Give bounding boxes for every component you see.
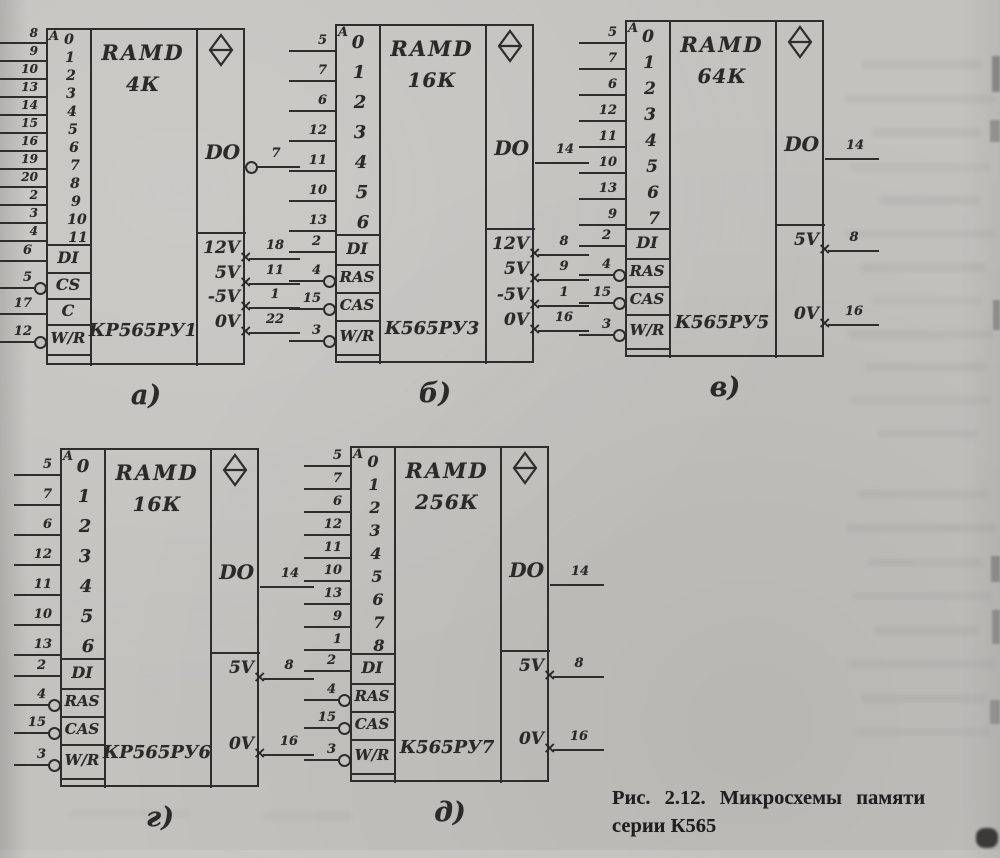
power-label: -5V (197, 287, 240, 307)
page-edge-mark (990, 700, 1000, 724)
inversion-circle-icon (34, 336, 47, 349)
pin-line (579, 146, 625, 148)
pin-number: 5 (289, 33, 327, 48)
pin-number: 2 (0, 188, 38, 202)
power-section-divider (775, 224, 825, 226)
address-bit-label: 7 (636, 209, 672, 229)
pin-line (0, 240, 46, 242)
address-bit-label: 7 (361, 613, 397, 632)
chip-v: A507162123114105136972DI4RAS15CAS3W/RRAM… (579, 20, 879, 428)
pin-number: 5 (579, 25, 617, 40)
pin-line (0, 260, 46, 262)
power-label: -5V (486, 285, 529, 305)
chip-label: д) (415, 797, 485, 828)
power-pin-cross-icon: × (253, 743, 266, 762)
pin-number: 10 (289, 183, 327, 198)
pin-line (289, 170, 335, 172)
power-label: 0V (486, 310, 529, 330)
address-bit-label: 1 (356, 475, 392, 494)
address-bit-label: 4 (54, 104, 90, 120)
pin-number: 16 (833, 304, 875, 319)
pin-number: 5 (0, 270, 32, 285)
pin-number: 4 (304, 682, 336, 697)
output-label: DO (777, 132, 819, 156)
chip-a: A8091102133144155166197208293104116DI5CS… (0, 28, 300, 436)
power-pin-cross-icon: × (239, 296, 252, 315)
pin-number: 3 (289, 323, 321, 338)
pin-number: 2 (14, 658, 46, 673)
input-label: CAS (626, 290, 668, 308)
pin-number: 11 (579, 129, 617, 144)
scan-smudge (874, 626, 979, 635)
inversion-circle-icon (48, 699, 61, 712)
pin-line (14, 504, 60, 506)
pin-number: 10 (14, 607, 52, 622)
pin-line (289, 340, 325, 342)
pin-number: 16 (0, 134, 38, 148)
scan-smudge (872, 297, 982, 305)
power-section-divider (485, 228, 535, 230)
input-label: CAS (61, 720, 103, 738)
power-section-divider (500, 650, 550, 652)
pin-line (579, 245, 625, 247)
input-label: CAS (336, 296, 378, 314)
address-bit-label: 3 (632, 105, 668, 125)
cell-separator (60, 778, 106, 780)
part-number-label: КР565РУ1 (88, 320, 198, 341)
inversion-circle-icon (323, 303, 336, 316)
page-edge-mark (992, 610, 1000, 644)
pin-line (289, 50, 335, 52)
power-pin-cross-icon: × (528, 243, 541, 262)
inversion-circle-icon (48, 727, 61, 740)
pin-number: 3 (0, 206, 38, 220)
power-label: 0V (197, 312, 240, 332)
pin-line (14, 624, 60, 626)
pin-line (579, 224, 625, 226)
chip-label: б) (400, 378, 470, 409)
power-pin-cross-icon: × (818, 239, 831, 258)
pin-number: 13 (0, 80, 38, 94)
input-label: DI (47, 248, 89, 267)
output-label: DO (198, 140, 240, 164)
pin-line (304, 649, 350, 651)
cell-separator (350, 773, 396, 775)
input-label: CAS (351, 715, 393, 733)
device-type-label: RAMD (106, 460, 208, 485)
scan-smudge (848, 660, 996, 668)
input-label: DI (626, 233, 668, 252)
pin-number: 12 (289, 123, 327, 138)
address-bit-label: 6 (345, 212, 381, 233)
cell-separator (60, 658, 106, 660)
power-pin-cross-icon: × (528, 268, 541, 287)
power-pin-cross-icon: × (818, 313, 831, 332)
pin-number: 4 (0, 224, 38, 238)
device-type-label: RAMD (671, 32, 773, 57)
pin-number: 10 (579, 155, 617, 170)
pin-number: 19 (0, 152, 38, 166)
pin-number: 2 (579, 228, 611, 243)
address-bit-label: 5 (69, 606, 105, 627)
inversion-circle-icon (323, 275, 336, 288)
chip-label: в) (690, 372, 760, 403)
input-label: C (47, 301, 89, 320)
pin-line (553, 749, 604, 751)
cell-separator (350, 711, 396, 713)
pin-line (289, 251, 335, 253)
cell-separator (46, 244, 92, 246)
pin-number: 12 (304, 517, 342, 532)
figure-caption: Рис. 2.12. Микросхемы памяти серии К565 (612, 784, 1000, 840)
chip-label: а) (111, 380, 181, 411)
address-bit-label: 0 (630, 27, 666, 47)
scan-smudge (872, 128, 982, 137)
pin-line (304, 465, 350, 467)
cell-separator (625, 258, 671, 260)
pin-number: 14 (560, 564, 600, 579)
pin-line (289, 80, 335, 82)
cell-separator (335, 320, 381, 322)
pin-number: 7 (304, 471, 342, 486)
power-pin-cross-icon: × (253, 667, 266, 686)
pin-line (14, 704, 50, 706)
address-bit-label: 4 (68, 576, 104, 597)
address-bit-label: 6 (56, 140, 92, 156)
chip-label: г) (125, 802, 195, 833)
pin-number: 10 (0, 62, 38, 76)
power-label: 5V (211, 658, 254, 678)
pin-number: 13 (304, 586, 342, 601)
scan-smudge (862, 60, 982, 69)
pin-number: 14 (0, 98, 38, 112)
input-label: DI (336, 239, 378, 258)
inversion-circle-icon (323, 335, 336, 348)
address-bit-label: 3 (67, 546, 103, 567)
page-edge-mark (991, 556, 1000, 582)
pin-number: 16 (558, 729, 600, 744)
pin-line (828, 250, 879, 252)
pin-line (828, 324, 879, 326)
scan-smudge (846, 524, 996, 532)
address-bit-label: 1 (341, 62, 377, 83)
pin-line (14, 534, 60, 536)
pin-number: 4 (289, 263, 321, 278)
pin-number: 14 (835, 138, 875, 153)
capacity-label: 16К (106, 492, 208, 516)
pin-number: 8 (558, 656, 600, 671)
page-edge-mark (990, 120, 1000, 142)
output-label: DO (487, 136, 529, 160)
pin-number: 3 (304, 742, 336, 757)
cell-separator (46, 298, 92, 300)
address-bit-label: 10 (59, 212, 95, 228)
address-bit-label: 3 (53, 86, 89, 102)
pin-line (579, 68, 625, 70)
cell-separator (335, 264, 381, 266)
cell-separator (46, 324, 92, 326)
pin-line (289, 280, 325, 282)
cell-separator (46, 354, 92, 356)
cell-separator (625, 228, 671, 230)
cell-separator (60, 688, 106, 690)
pin-number: 6 (289, 93, 327, 108)
inversion-circle-icon (613, 269, 626, 282)
power-label: 5V (501, 656, 544, 676)
pin-line (304, 670, 350, 672)
address-bit-label: 6 (70, 636, 106, 657)
pin-line (14, 732, 50, 734)
pin-number: 17 (0, 296, 32, 311)
tristate-output-icon (208, 33, 234, 67)
pin-number: 15 (579, 285, 611, 300)
pin-number: 4 (14, 687, 46, 702)
pin-number: 15 (0, 116, 38, 130)
cell-separator (46, 272, 92, 274)
cell-separator (350, 683, 396, 685)
pin-number: 10 (304, 563, 342, 578)
power-label: 12V (486, 234, 529, 254)
output-label: DO (212, 560, 254, 584)
pin-line (14, 654, 60, 656)
scan-smudge (880, 196, 980, 205)
pin-line (304, 534, 350, 536)
address-bit-label: 2 (53, 68, 89, 84)
pin-line (14, 564, 60, 566)
pin-number: 11 (304, 540, 342, 555)
pin-line (304, 759, 340, 761)
power-section-divider (196, 232, 246, 234)
pin-line (304, 626, 350, 628)
tristate-output-icon (512, 451, 538, 485)
cell-separator (60, 716, 106, 718)
pin-line (304, 557, 350, 559)
address-bit-label: 6 (635, 183, 671, 203)
pin-line (289, 140, 335, 142)
power-pin-cross-icon: × (543, 738, 556, 757)
input-label: W/R (336, 327, 378, 345)
tristate-output-icon (787, 25, 813, 59)
pin-number: 15 (14, 715, 46, 730)
inversion-circle-icon (338, 722, 351, 735)
pin-line (304, 603, 350, 605)
power-pin-cross-icon: × (239, 321, 252, 340)
capacity-label: 16К (381, 68, 483, 92)
pin-number: 5 (14, 457, 52, 472)
cell-separator (335, 354, 381, 356)
address-bit-label: 0 (340, 32, 376, 53)
pin-number: 12 (0, 324, 32, 339)
address-bit-label: 3 (357, 521, 393, 540)
pin-line (553, 676, 604, 678)
pin-number: 15 (304, 710, 336, 725)
pin-line (825, 158, 879, 160)
address-bit-label: 0 (51, 32, 87, 48)
cell-separator (350, 653, 396, 655)
part-number-label: КР565РУ6 (102, 742, 212, 763)
address-bit-label: 6 (360, 590, 396, 609)
pin-number: 7 (14, 487, 52, 502)
address-bit-label: 1 (52, 50, 88, 66)
pin-number: 4 (579, 257, 611, 272)
scan-smudge (878, 430, 978, 438)
caption-line2: серии К565 (612, 812, 1000, 840)
input-label: RAS (626, 262, 668, 280)
address-bit-label: 7 (57, 158, 93, 174)
inversion-circle-icon (338, 694, 351, 707)
power-label: 5V (197, 263, 240, 283)
power-label: 0V (776, 304, 819, 324)
pin-number: 9 (0, 44, 38, 58)
power-label: 0V (211, 734, 254, 754)
pin-line (289, 110, 335, 112)
pin-number: 6 (579, 77, 617, 92)
address-bit-label: 9 (58, 194, 94, 210)
inversion-circle-icon (34, 282, 47, 295)
inversion-circle-icon (613, 297, 626, 310)
pin-number: 1 (304, 632, 342, 647)
pin-number: 2 (304, 653, 336, 668)
input-label: W/R (351, 746, 393, 764)
pin-number: 11 (289, 153, 327, 168)
part-number-label: К565РУ7 (392, 737, 502, 758)
address-bit-label: 2 (342, 92, 378, 113)
pin-number: 13 (579, 181, 617, 196)
page-edge-mark (992, 56, 1000, 92)
input-label: W/R (626, 321, 668, 339)
pin-line (579, 120, 625, 122)
pin-line (14, 675, 60, 677)
pin-number: 5 (304, 448, 342, 463)
pin-line (14, 474, 60, 476)
figure-2-12: A8091102133144155166197208293104116DI5CS… (0, 0, 1000, 850)
power-label: 0V (501, 729, 544, 749)
chip-d: A50716212311410513697182DI4RAS15CAS3W/RR… (304, 446, 604, 853)
scan-smudge (852, 592, 992, 600)
pin-number: 6 (0, 243, 32, 258)
pin-line (579, 302, 615, 304)
pin-line (0, 313, 46, 315)
output-label: DO (502, 558, 544, 582)
pin-number: 9 (579, 207, 617, 222)
pin-number: 6 (14, 517, 52, 532)
caption-line1: Рис. 2.12. Микросхемы памяти (612, 784, 1000, 812)
address-bit-label: 5 (55, 122, 91, 138)
address-bit-label: 4 (343, 152, 379, 173)
pin-line (579, 334, 615, 336)
address-bit-label: 1 (631, 53, 667, 73)
tristate-output-icon (222, 453, 248, 487)
input-label: DI (351, 658, 393, 677)
power-pin-cross-icon: × (528, 319, 541, 338)
device-type-label: RAMD (381, 36, 483, 61)
scan-smudge (855, 728, 990, 736)
scan-smudge (862, 694, 987, 703)
address-bit-label: 0 (355, 452, 391, 471)
part-number-label: К565РУ5 (667, 312, 777, 333)
input-label: W/R (61, 751, 103, 769)
tristate-output-icon (497, 29, 523, 63)
input-label: RAS (336, 268, 378, 286)
chip-b: A5071621231141051362DI4RAS15CAS3W/RRAMD1… (289, 24, 589, 434)
capacity-label: 256К (396, 490, 498, 514)
pin-number: 12 (14, 547, 52, 562)
address-bit-label: 8 (57, 176, 93, 192)
address-bit-label: 4 (358, 544, 394, 563)
cell-separator (335, 292, 381, 294)
input-label: RAS (351, 687, 393, 705)
address-bit-label: 2 (67, 516, 103, 537)
address-bit-label: 2 (357, 498, 393, 517)
address-bit-label: 4 (633, 131, 669, 151)
pin-line (579, 198, 625, 200)
capacity-label: 64К (671, 64, 773, 88)
input-label: W/R (47, 329, 89, 347)
page-edge-mark (993, 300, 1000, 330)
pin-line (0, 287, 36, 289)
pin-line (579, 42, 625, 44)
power-label: 5V (776, 230, 819, 250)
pin-number: 6 (304, 494, 342, 509)
power-label: 12V (197, 238, 240, 258)
scan-smudge (858, 490, 988, 499)
pin-line (304, 727, 340, 729)
cell-separator (625, 314, 671, 316)
pin-number: 12 (579, 103, 617, 118)
pin-number: 3 (579, 317, 611, 332)
address-bit-label: 5 (634, 157, 670, 177)
input-label: DI (61, 663, 103, 682)
cell-separator (625, 286, 671, 288)
address-bit-label: 5 (344, 182, 380, 203)
power-pin-cross-icon: × (239, 272, 252, 291)
pin-line (14, 764, 50, 766)
address-bit-label: 3 (342, 122, 378, 143)
address-bit-label: 2 (632, 79, 668, 99)
input-label: RAS (61, 692, 103, 710)
pin-line (289, 230, 335, 232)
inversion-circle-icon (48, 759, 61, 772)
device-type-label: RAMD (396, 458, 498, 483)
pin-line (550, 584, 604, 586)
pin-line (579, 94, 625, 96)
pin-line (289, 308, 325, 310)
pin-line (304, 488, 350, 490)
pin-number: 7 (289, 63, 327, 78)
chip-g: A5071621231141051362DI4RAS15CAS3W/RRAMD1… (14, 448, 314, 858)
cell-separator (625, 348, 671, 350)
pin-number: 15 (289, 291, 321, 306)
pin-line (304, 699, 340, 701)
power-pin-cross-icon: × (239, 247, 252, 266)
input-label: CS (47, 275, 89, 294)
pin-line (289, 200, 335, 202)
capacity-label: 4К (92, 72, 194, 96)
address-bit-label: 0 (65, 456, 101, 477)
pin-number: 8 (0, 26, 38, 40)
pin-number: 3 (14, 747, 46, 762)
part-number-label: К565РУ3 (377, 318, 487, 339)
pin-number: 11 (14, 577, 52, 592)
pin-number: 7 (579, 51, 617, 66)
pin-line (304, 511, 350, 513)
pin-number: 9 (304, 609, 342, 624)
address-bit-label: 1 (66, 486, 102, 507)
pin-line (0, 341, 36, 343)
device-type-label: RAMD (92, 40, 194, 65)
pin-number: 2 (289, 234, 321, 249)
cell-separator (335, 234, 381, 236)
